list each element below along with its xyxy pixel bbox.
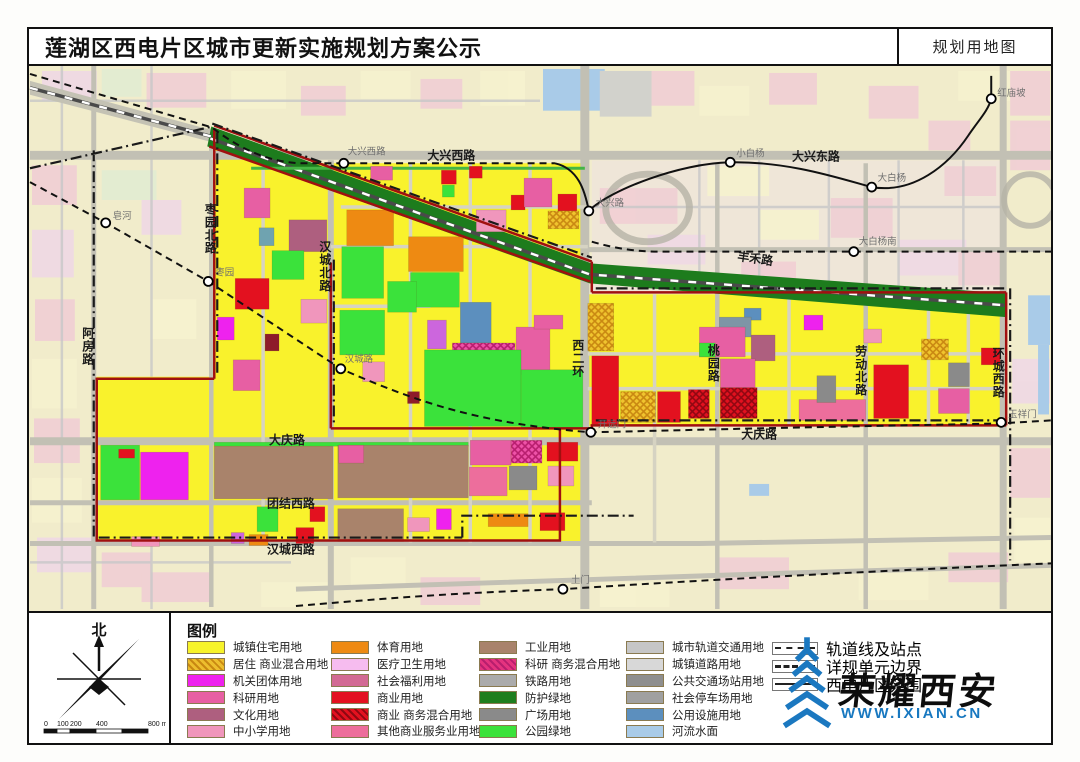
road-label-daqing-1: 大庆路 <box>269 433 306 447</box>
legend-swatch <box>187 725 225 738</box>
legend-item: 文化用地 <box>187 706 328 723</box>
pagoda-icon <box>781 635 833 735</box>
scale-tick: 400 <box>96 721 108 728</box>
legend-item: 公用设施用地 <box>626 706 764 723</box>
map-type-bar: 规划用地图 <box>897 27 1053 66</box>
legend-swatch <box>479 674 517 687</box>
legend-label: 铁路用地 <box>525 673 571 689</box>
legend-item: 广场用地 <box>479 706 620 723</box>
legend-item: 商业 商务混合用地 <box>331 706 481 723</box>
legend-label: 工业用地 <box>525 639 571 655</box>
legend-item: 工业用地 <box>479 639 620 656</box>
legend-item: 中小学用地 <box>187 723 328 740</box>
legend-item: 其他商业服务业用地 <box>331 723 481 740</box>
scale-tick: 0 <box>44 721 48 728</box>
legend-label: 城镇住宅用地 <box>233 639 302 655</box>
legend-item: 机关团体用地 <box>187 673 328 690</box>
station-label-zaohe: 皂河 <box>113 210 132 222</box>
legend-swatch <box>187 691 225 704</box>
legend-label: 居住 商业混合用地 <box>233 656 328 672</box>
legend-swatch <box>626 725 664 738</box>
compass-panel: 北 0100200400800 m <box>27 611 171 745</box>
legend-label: 公园绿地 <box>525 723 571 739</box>
legend-item: 商业用地 <box>331 689 481 706</box>
legend-swatch <box>479 641 517 654</box>
road-label-hancheng-north: 汉城北路 <box>318 240 332 292</box>
legend-column-1: 城镇住宅用地居住 商业混合用地机关团体用地科研用地文化用地中小学用地 <box>187 639 328 740</box>
legend-label: 城市轨道交通用地 <box>672 639 764 655</box>
page-title: 莲湖区西电片区城市更新实施规划方案公示 <box>45 31 482 63</box>
legend-swatch <box>187 674 225 687</box>
legend-label: 机关团体用地 <box>233 673 302 689</box>
legend-swatch <box>479 658 517 671</box>
legend-item: 医疗卫生用地 <box>331 656 481 673</box>
road-label-laodong-north: 劳动北路 <box>854 344 868 396</box>
legend-label: 公共交通场站用地 <box>672 673 764 689</box>
station-label-daxinglu: 大兴路 <box>596 197 625 209</box>
brand-logo: 荣耀西安 WWW.IXIAN.CN <box>781 635 1043 739</box>
road-label-taoyuan: 桃园路 <box>706 343 720 382</box>
road-label-daqing-2: 大庆路 <box>741 427 778 441</box>
legend-swatch <box>187 708 225 721</box>
landuse-map: 皂河 枣园 汉城路 开远门 玉祥门 土门 大兴西路 大兴路 小白杨 大白杨 大白… <box>29 66 1051 611</box>
legend-item: 公共交通场站用地 <box>626 673 764 690</box>
legend-label: 广场用地 <box>525 707 571 723</box>
road-label-huancheng-west: 环城西路 <box>991 347 1005 399</box>
station-label-dabaiyangnan: 大白杨南 <box>859 236 897 248</box>
legend-label: 医疗卫生用地 <box>377 656 446 672</box>
legend-item: 城镇道路用地 <box>626 656 764 673</box>
legend-swatch <box>626 708 664 721</box>
legend-label: 公用设施用地 <box>672 707 741 723</box>
station-label-hanchenglu: 汉城路 <box>345 353 374 365</box>
station-label-yuxiangmen: 玉祥门 <box>1008 408 1036 420</box>
scale-bar: 0100200400800 m <box>36 717 166 739</box>
station-label-daxingxilu: 大兴西路 <box>348 145 386 157</box>
planning-notice-page: 莲湖区西电片区城市更新实施规划方案公示 规划用地图 <box>0 0 1080 762</box>
legend-label: 防护绿地 <box>525 690 571 706</box>
station-label-dabaiyang: 大白杨 <box>878 172 906 184</box>
legend-panel: 图例 城镇住宅用地居住 商业混合用地机关团体用地科研用地文化用地中小学用地 体育… <box>169 611 1053 745</box>
legend-label: 社会停车场用地 <box>672 690 753 706</box>
legend-column-2: 体育用地医疗卫生用地社会福利用地商业用地商业 商务混合用地其他商业服务业用地 <box>331 639 481 740</box>
road-label-zaoyuan-north: 枣园北路 <box>203 202 217 254</box>
legend-label: 社会福利用地 <box>377 673 446 689</box>
legend-swatch <box>187 658 225 671</box>
station-label-hongmiaopo: 红庙坡 <box>997 87 1026 99</box>
legend-item: 社会福利用地 <box>331 673 481 690</box>
title-bar: 莲湖区西电片区城市更新实施规划方案公示 <box>27 27 899 66</box>
legend-swatch <box>479 725 517 738</box>
road-label-daxing-east: 大兴东路 <box>792 149 841 163</box>
legend-item: 公园绿地 <box>479 723 620 740</box>
legend-label: 中小学用地 <box>233 723 291 739</box>
scale-tick: 800 m <box>148 721 166 728</box>
legend-label: 其他商业服务业用地 <box>377 723 481 739</box>
legend-swatch <box>187 641 225 654</box>
legend-item: 居住 商业混合用地 <box>187 656 328 673</box>
station-label-kaiyuanmen: 开远门 <box>598 418 626 430</box>
scale-tick: 200 <box>70 721 82 728</box>
legend-column-4: 城市轨道交通用地城镇道路用地公共交通场站用地社会停车场用地公用设施用地河流水面 <box>626 639 764 740</box>
road-label-xierhuan: 西二环 <box>571 339 585 378</box>
legend-item: 防护绿地 <box>479 689 620 706</box>
legend-label: 科研用地 <box>233 690 279 706</box>
legend-swatch <box>331 658 369 671</box>
legend-swatch <box>626 658 664 671</box>
legend-swatch <box>479 691 517 704</box>
legend-label: 文化用地 <box>233 707 279 723</box>
brand-url: WWW.IXIAN.CN <box>841 705 983 722</box>
legend-item: 城市轨道交通用地 <box>626 639 764 656</box>
scale-tick: 100 <box>57 721 69 728</box>
station-label-tumen: 土门 <box>571 574 590 586</box>
road-label-daxing-west: 大兴西路 <box>427 148 476 162</box>
legend-swatch <box>626 674 664 687</box>
legend-item: 科研 商务混合用地 <box>479 656 620 673</box>
legend-swatch <box>331 641 369 654</box>
legend-label: 城镇道路用地 <box>672 656 741 672</box>
legend-label: 体育用地 <box>377 639 423 655</box>
road-label-hancheng-west: 汉城西路 <box>267 542 316 556</box>
legend-item: 城镇住宅用地 <box>187 639 328 656</box>
legend-item: 科研用地 <box>187 689 328 706</box>
station-label-xiaobaiyang: 小白杨 <box>736 147 764 159</box>
legend-item: 体育用地 <box>331 639 481 656</box>
legend-column-3: 工业用地科研 商务混合用地铁路用地防护绿地广场用地公园绿地 <box>479 639 620 740</box>
legend-label: 科研 商务混合用地 <box>525 656 620 672</box>
map-type-label: 规划用地图 <box>932 36 1017 57</box>
road-label-tuanjie-west: 团结西路 <box>267 497 316 511</box>
legend-swatch <box>331 674 369 687</box>
road-label-epang: 阿房路 <box>81 327 95 366</box>
legend-swatch <box>331 691 369 704</box>
legend-swatch <box>626 641 664 654</box>
legend-label: 商业用地 <box>377 690 423 706</box>
legend-label: 河流水面 <box>672 723 718 739</box>
legend-swatch <box>626 691 664 704</box>
legend-swatch <box>479 708 517 721</box>
legend-item: 铁路用地 <box>479 673 620 690</box>
legend-swatch <box>331 725 369 738</box>
legend-title: 图例 <box>187 620 217 641</box>
legend-label: 商业 商务混合用地 <box>377 707 472 723</box>
station-label-zaoyuan: 枣园 <box>215 267 234 278</box>
legend-item: 社会停车场用地 <box>626 689 764 706</box>
map-canvas: 皂河 枣园 汉城路 开远门 玉祥门 土门 大兴西路 大兴路 小白杨 大白杨 大白… <box>27 64 1053 613</box>
compass-rose <box>29 633 169 719</box>
legend-item: 河流水面 <box>626 723 764 740</box>
legend-swatch <box>331 708 369 721</box>
